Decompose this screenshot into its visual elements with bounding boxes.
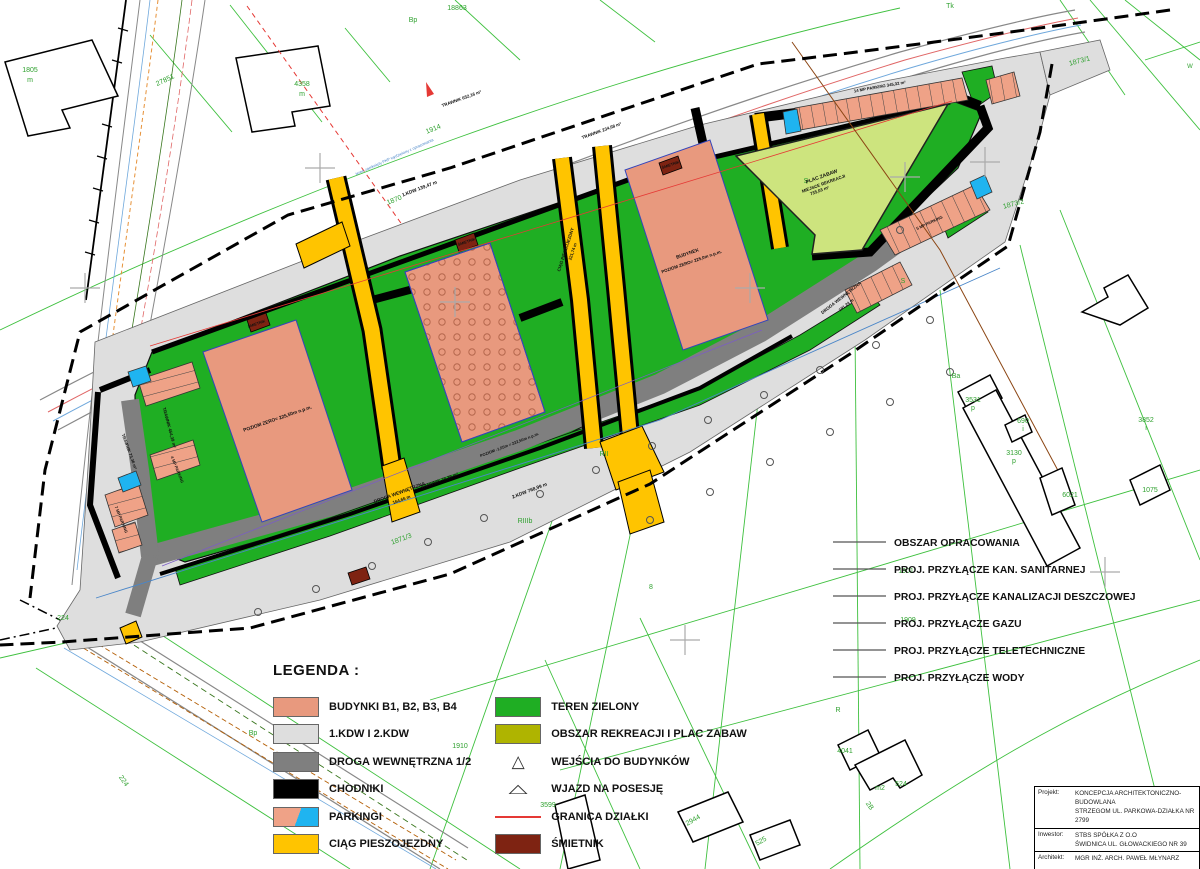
map-label: Bp [409, 17, 418, 24]
legend-item: ŚMIETNIK [495, 831, 747, 859]
legend-item: BUDYNKI B1, B2, B3, B4 [273, 693, 471, 721]
map-label: 1914 [425, 123, 442, 135]
map-label: teren zamknięty PKP wydzielony z opracow… [355, 137, 435, 176]
map-label: Bp [249, 730, 258, 737]
map-label: S [901, 278, 906, 285]
legend-item: 1.KDW I 2.KDW [273, 721, 471, 749]
entry-triangle-icon: △ [495, 752, 541, 772]
title-block: Projekt: KONCEPCJA ARCHITEKTONICZNO-BUDO… [1034, 786, 1200, 869]
title-block-row-projekt: Projekt: KONCEPCJA ARCHITEKTONICZNO-BUDO… [1035, 787, 1199, 829]
legend-swatch [273, 779, 319, 799]
inwestor-line2: ŚWIDNICA UL. GŁOWACKIEGO NR 39 [1075, 840, 1197, 849]
legend-column-right: TEREN ZIELONYOBSZAR REKREACJI I PLAC ZAB… [495, 693, 747, 858]
legend-column-left: BUDYNKI B1, B2, B3, B41.KDW I 2.KDWDROGA… [273, 693, 471, 858]
architekt-line1: MGR INŻ. ARCH. PAWEŁ MŁYNARZ [1075, 854, 1197, 863]
legend: LEGENDA : BUDYNKI B1, B2, B3, B41.KDW I … [273, 662, 773, 858]
legend-label: BUDYNKI B1, B2, B3, B4 [329, 701, 457, 713]
title-block-row-inwestor: Inwestor: STBS SPÓŁKA Z O.O ŚWIDNICA UL.… [1035, 829, 1199, 852]
legend-label: TEREN ZIELONY [551, 701, 639, 713]
legend-item: CHODNIKI [273, 776, 471, 804]
map-label: 1870 [386, 194, 403, 206]
inwestor-label: Inwestor: [1035, 829, 1073, 851]
map-label: 3531 [965, 397, 981, 404]
map-label: TRAWNIK 234,68 m² [581, 121, 622, 140]
map-label: Ba [952, 373, 961, 380]
map-label: m2 [875, 785, 885, 792]
map-label: W [1187, 64, 1193, 70]
legend-item: △WJAZD NA POSESJĘ [495, 776, 747, 804]
map-label: 4041 [837, 748, 853, 755]
site-plan-stage: 18863TkBp1873/11873/2191418701871/322422… [0, 0, 1200, 869]
line-legend-label: PROJ. PRZYŁĄCZE TELETECHNICZNE [894, 646, 1085, 657]
map-label: 224 [57, 615, 69, 622]
map-label: 1075 [1142, 487, 1158, 494]
legend-label: GRANICA DZIAŁKI [551, 811, 648, 823]
map-label: TRAWNIK 652,16 m² [441, 89, 482, 108]
map-label: 1.KDW 139,47 m [401, 180, 438, 199]
map-label: m [27, 77, 33, 84]
legend-item: TEREN ZIELONY [495, 693, 747, 721]
legend-item: DROGA WEWNĘTRZNA 1/2 [273, 748, 471, 776]
legend-title: LEGENDA : [273, 662, 773, 679]
legend-label: OBSZAR REKREACJI I PLAC ZABAW [551, 728, 747, 740]
line-legend: OBSZAR OPRACOWANIAPROJ. PRZYŁĄCZE KAN. S… [833, 538, 1136, 684]
legend-swatch [495, 816, 541, 818]
architekt-label: Architekt: [1035, 852, 1073, 869]
projekt-line1: KONCEPCJA ARCHITEKTONICZNO-BUDOWLANA [1075, 789, 1197, 807]
map-label: RII [600, 451, 609, 458]
legend-swatch [495, 834, 541, 854]
line-legend-label: PROJ. PRZYŁĄCZE GAZU [894, 619, 1022, 630]
map-label: p [971, 405, 975, 412]
title-block-row-architekt: Architekt: MGR INŻ. ARCH. PAWEŁ MŁYNARZ [1035, 852, 1199, 869]
map-label: 4358 [294, 81, 310, 88]
map-label: 6021 [1062, 492, 1078, 499]
inwestor-line1: STBS SPÓŁKA Z O.O [1075, 831, 1197, 840]
legend-label: CIĄG PIESZOJEZDNY [329, 838, 443, 850]
legend-item: GRANICA DZIAŁKI [495, 803, 747, 831]
legend-label: WJAZD NA POSESJĘ [551, 783, 663, 795]
legend-label: WEJŚCIA DO BUDYNKÓW [551, 756, 689, 768]
map-label: 690 [1017, 418, 1029, 425]
map-label: 3130 [1006, 450, 1022, 457]
map-label: R [835, 707, 840, 714]
legend-label: DROGA WEWNĘTRZNA 1/2 [329, 756, 471, 768]
map-label: Tk [946, 3, 954, 10]
legend-swatch [495, 697, 541, 717]
legend-label: 1.KDW I 2.KDW [329, 728, 409, 740]
projekt-line2: STRZEGOM UL. PARKOWA-DZIAŁKA NR 2799 [1075, 807, 1197, 825]
legend-swatch [495, 724, 541, 744]
map-label: RIIIb [518, 518, 533, 525]
map-label: 27851 [155, 73, 176, 88]
existing-building-1805 [5, 40, 118, 136]
legend-label: CHODNIKI [329, 783, 383, 795]
map-label: m [299, 91, 305, 98]
line-legend-label: OBSZAR OPRACOWANIA [894, 538, 1020, 549]
legend-swatch [273, 697, 319, 717]
map-label: 1805 [22, 67, 38, 74]
map-label: 2B [864, 801, 875, 812]
map-label: 3852 [1138, 417, 1154, 424]
gate-triangle-icon: △ [485, 782, 552, 796]
legend-swatch [273, 834, 319, 854]
legend-swatch [273, 807, 319, 827]
map-label: 18863 [447, 5, 467, 12]
line-legend-label: PROJ. PRZYŁĄCZE WODY [894, 673, 1025, 684]
legend-item: PARKINGI [273, 803, 471, 831]
map-label: 224 [117, 774, 129, 788]
line-legend-label: PROJ. PRZYŁĄCZE KAN. SANITARNEJ [894, 565, 1086, 576]
legend-label: ŚMIETNIK [551, 838, 604, 850]
existing-building-4358 [236, 46, 330, 132]
legend-item: CIĄG PIESZOJEZDNY [273, 831, 471, 859]
existing-buildings [5, 40, 330, 136]
legend-item: OBSZAR REKREACJI I PLAC ZABAW [495, 721, 747, 749]
legend-swatch [273, 752, 319, 772]
map-label: 8 [649, 584, 653, 591]
line-legend-label: PROJ. PRZYŁĄCZE KANALIZACJI DESZCZOWEJ [894, 592, 1136, 603]
map-label: p [1012, 458, 1016, 465]
legend-label: PARKINGI [329, 811, 382, 823]
projekt-label: Projekt: [1035, 787, 1073, 828]
legend-item: △WEJŚCIA DO BUDYNKÓW [495, 748, 747, 776]
legend-swatch [273, 724, 319, 744]
map-label: 524 [895, 781, 907, 788]
